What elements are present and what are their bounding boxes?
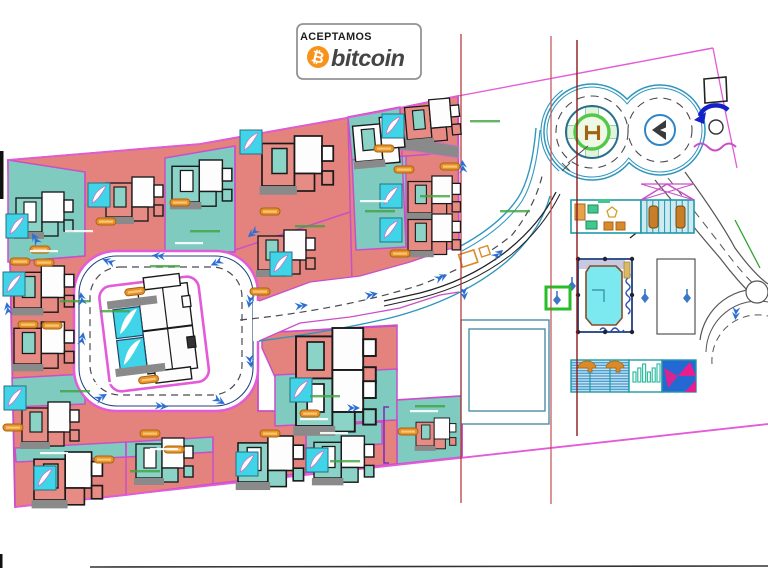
svg-text:ACEPTAMOS: ACEPTAMOS	[300, 31, 372, 43]
svg-text:bitcoin: bitcoin	[331, 45, 405, 71]
